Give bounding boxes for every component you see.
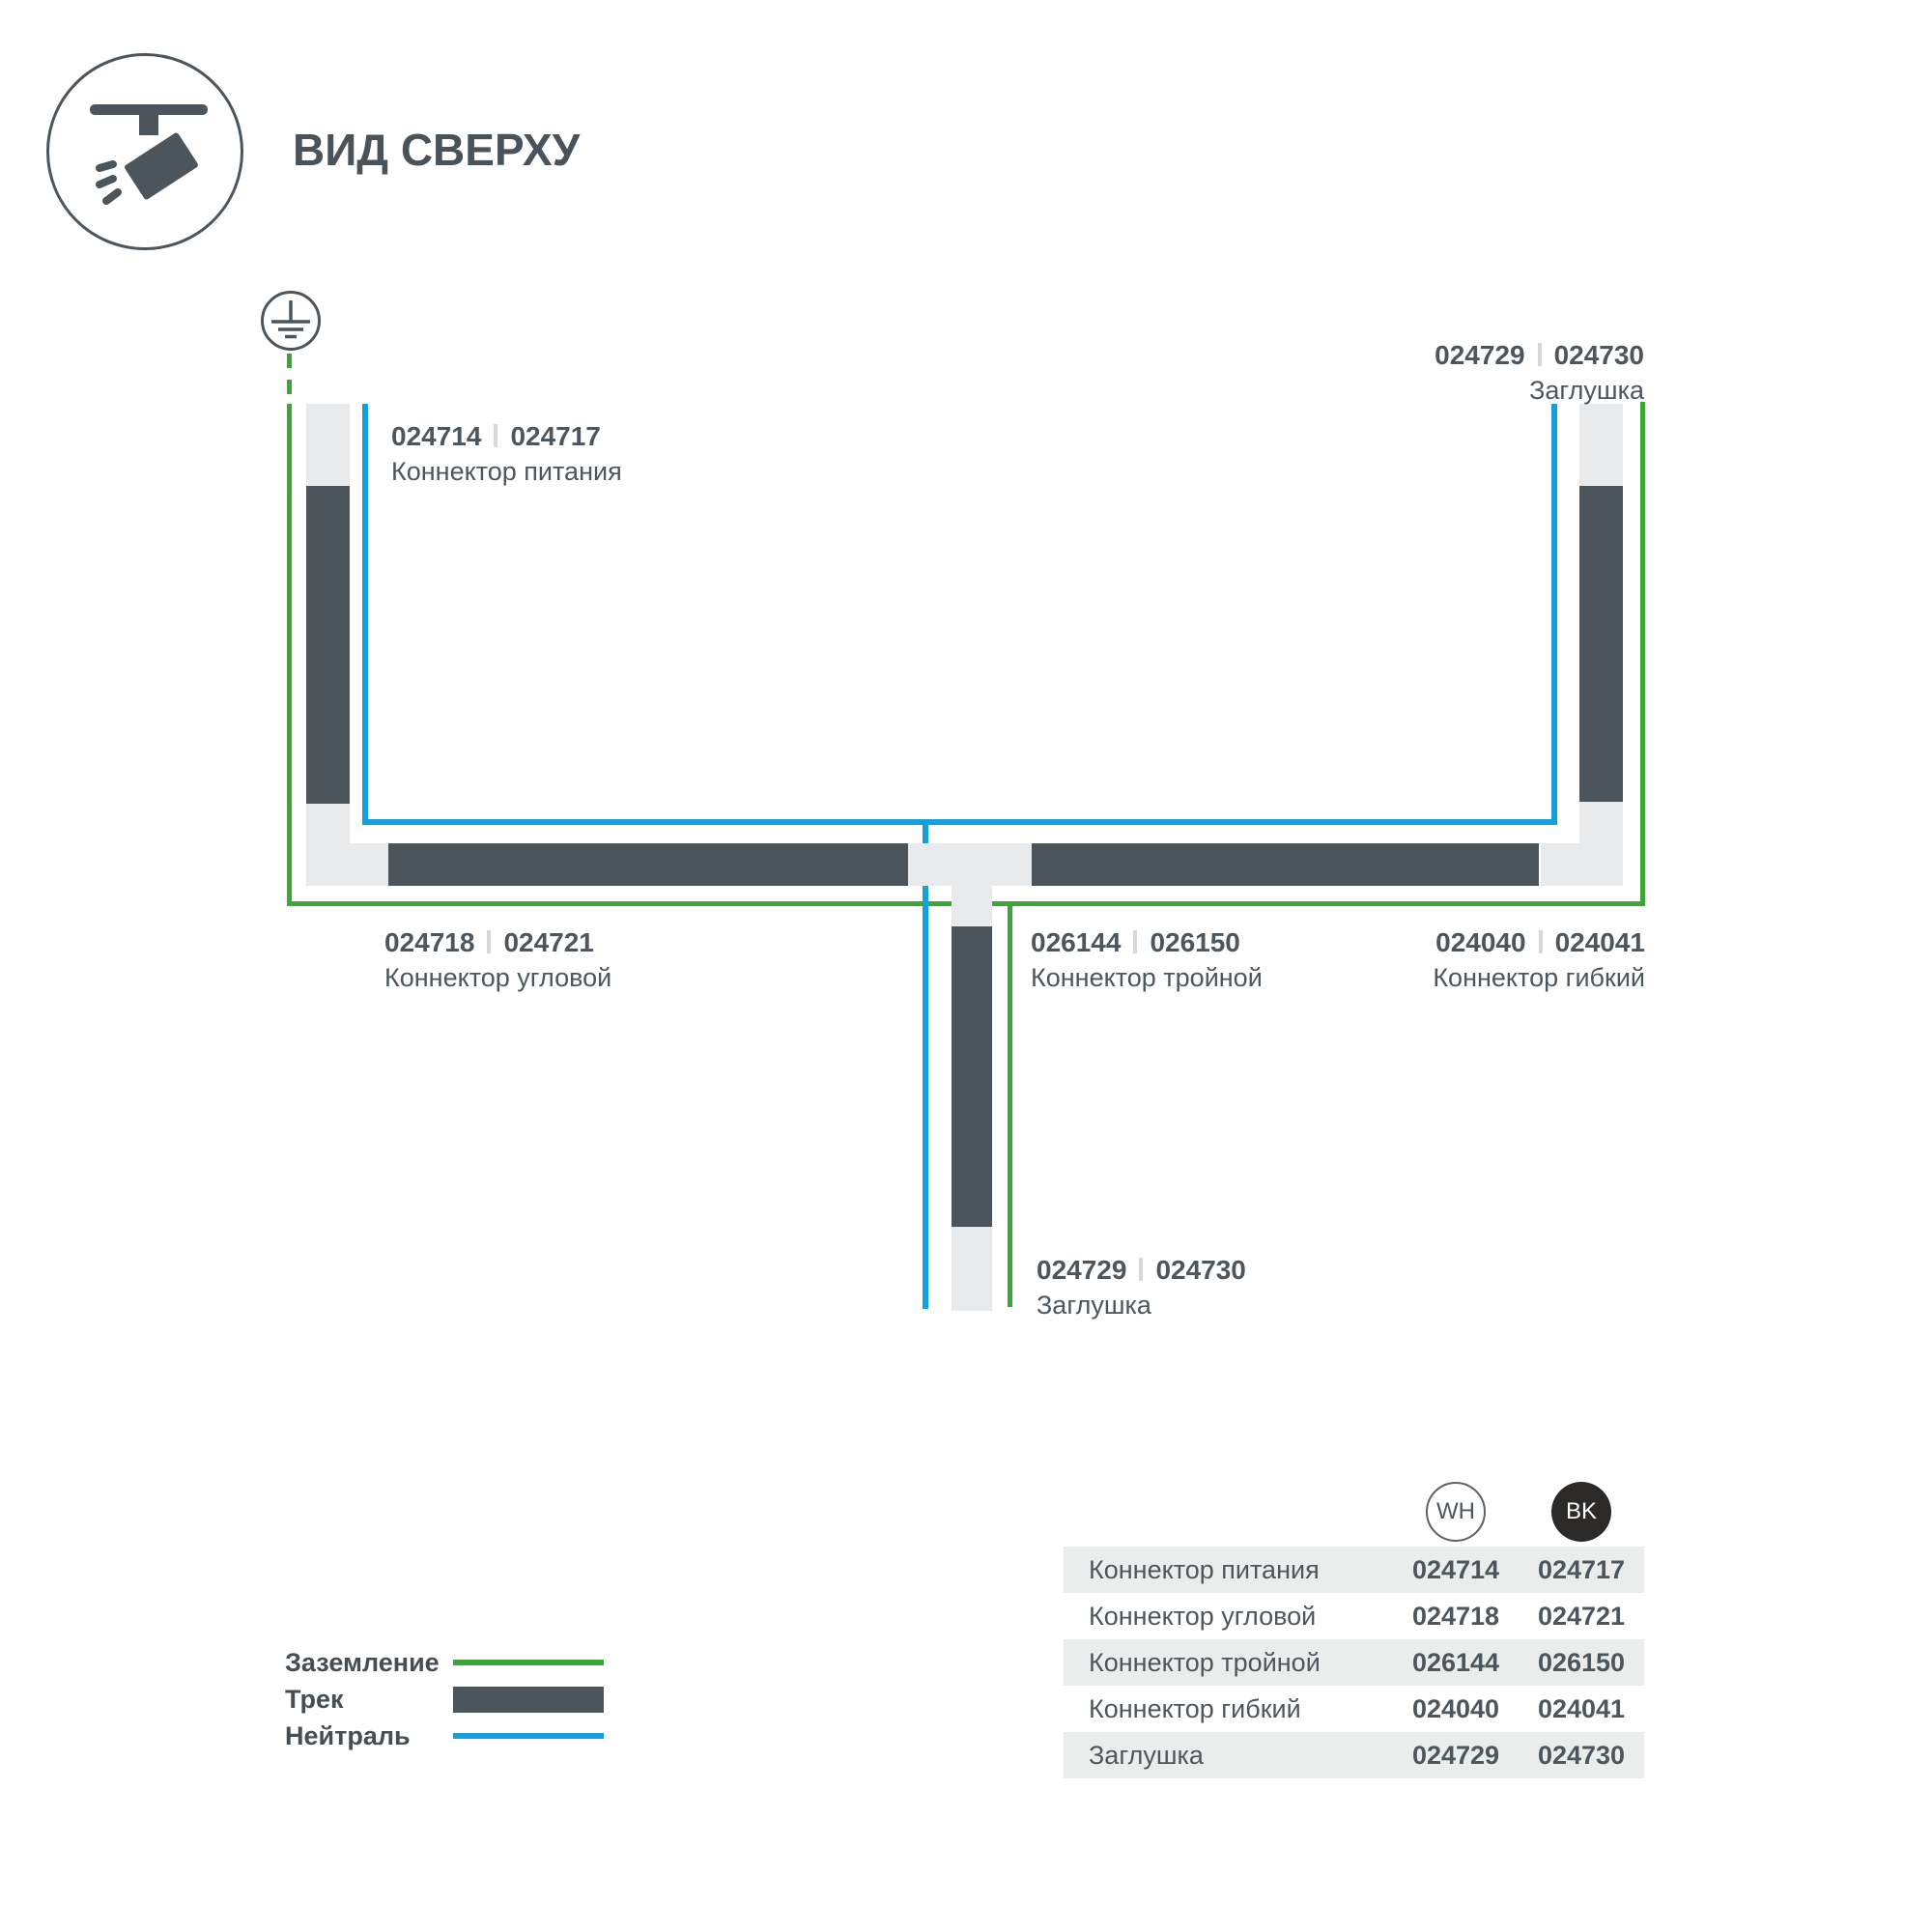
track-segment-right — [1579, 486, 1623, 802]
part-number-wh: 024714 — [391, 421, 481, 451]
t-connector-bar — [908, 843, 1032, 886]
divider — [1539, 930, 1543, 953]
part-numbers: 026144026150 — [1031, 925, 1263, 960]
neutral-line-middle-drop — [923, 824, 928, 1309]
row-wh-code: 024718 — [1393, 1602, 1519, 1632]
part-number-wh: 024040 — [1435, 927, 1525, 957]
column-header-white: WH — [1426, 1482, 1486, 1542]
ground-line-dashed — [287, 354, 292, 404]
part-numbers: 024729024730 — [1037, 1253, 1246, 1288]
corner-connector-left-v — [306, 804, 350, 886]
row-bk-code: 024041 — [1519, 1694, 1644, 1724]
row-label: Коннектор угловой — [1064, 1602, 1393, 1632]
corner-connector-right-v — [1579, 802, 1623, 886]
part-number-bk: 024041 — [1555, 927, 1645, 957]
ground-line-left — [287, 404, 292, 906]
legend-label: Нейтраль — [285, 1721, 453, 1751]
neutral-line-left — [362, 404, 368, 821]
part-number-bk: 024721 — [503, 927, 593, 957]
page-title: ВИД СВЕРХУ — [293, 124, 580, 176]
neutral-line-right — [1551, 404, 1557, 819]
neutral-line-swatch — [453, 1733, 604, 1739]
legend-label: Трек — [285, 1685, 453, 1715]
ground-line-swatch — [453, 1660, 604, 1665]
row-label: Коннектор тройной — [1064, 1648, 1393, 1678]
divider — [487, 930, 491, 953]
part-name: Заглушка — [1435, 373, 1644, 408]
legend: Заземление Трек Нейтраль — [285, 1644, 604, 1754]
part-number-bk: 024717 — [510, 421, 600, 451]
table-row: Коннектор тройной 026144 026150 — [1064, 1639, 1644, 1686]
callout-flexible-connector: 024040024041 Коннектор гибкий — [1433, 925, 1645, 995]
part-number-wh: 026144 — [1031, 927, 1121, 957]
legend-label: Заземление — [285, 1648, 453, 1678]
track-segment-left — [306, 486, 350, 804]
part-number-bk: 024730 — [1554, 340, 1644, 370]
row-label: Коннектор гибкий — [1064, 1694, 1393, 1724]
table-row: Заглушка 024729 024730 — [1064, 1732, 1644, 1778]
row-bk-code: 024721 — [1519, 1602, 1644, 1632]
t-connector-stub — [952, 886, 992, 926]
row-bk-code: 024717 — [1519, 1555, 1644, 1585]
part-name: Коннектор питания — [391, 454, 622, 489]
part-name: Коннектор гибкий — [1433, 960, 1645, 995]
divider — [1538, 343, 1542, 366]
row-bk-code: 026150 — [1519, 1648, 1644, 1678]
track-bar-swatch — [453, 1687, 604, 1713]
row-wh-code: 024040 — [1393, 1694, 1519, 1724]
legend-item-ground: Заземление — [285, 1644, 604, 1681]
neutral-line-bottom — [362, 819, 1557, 825]
table-row: Коннектор гибкий 024040 024041 — [1064, 1686, 1644, 1732]
row-wh-code: 024714 — [1393, 1555, 1519, 1585]
part-numbers: 024729024730 — [1435, 338, 1644, 373]
column-header-black: BK — [1551, 1482, 1611, 1542]
row-wh-code: 024729 — [1393, 1741, 1519, 1771]
divider — [1139, 1258, 1143, 1281]
part-name: Коннектор тройной — [1031, 960, 1263, 995]
corner-connector-right-h — [1541, 843, 1579, 886]
ground-symbol-icon — [261, 291, 321, 351]
callout-end-cap-top: 024729024730 Заглушка — [1435, 338, 1644, 408]
part-number-wh: 024718 — [384, 927, 474, 957]
table-row: Коннектор питания 024714 024717 — [1064, 1547, 1644, 1593]
track-segment-bottom-left — [388, 843, 908, 886]
page: ВИД СВЕРХУ 024714024717 Коннек — [0, 0, 1932, 1932]
ground-line-middle-drop — [1008, 906, 1012, 1307]
part-name: Коннектор угловой — [384, 960, 611, 995]
divider — [494, 424, 497, 447]
end-cap-bottom — [952, 1227, 992, 1311]
divider — [1133, 930, 1137, 953]
ground-line-right — [1640, 402, 1645, 901]
part-number-bk: 026150 — [1150, 927, 1239, 957]
part-number-bk: 024730 — [1155, 1255, 1245, 1285]
row-bk-code: 024730 — [1519, 1741, 1644, 1771]
track-segment-bottom-right — [1032, 843, 1539, 886]
callout-corner-connector: 024718024721 Коннектор угловой — [384, 925, 611, 995]
part-numbers: 024040024041 — [1433, 925, 1645, 960]
row-label: Заглушка — [1064, 1741, 1393, 1771]
part-numbers: 024718024721 — [384, 925, 611, 960]
legend-item-track: Трек — [285, 1681, 604, 1718]
row-label: Коннектор питания — [1064, 1555, 1393, 1585]
callout-triple-connector: 026144026150 Коннектор тройной — [1031, 925, 1263, 995]
part-numbers: 024714024717 — [391, 419, 622, 454]
track-segment-middle — [952, 926, 992, 1227]
parts-table: Коннектор питания 024714 024717 Коннекто… — [1064, 1547, 1644, 1778]
part-number-wh: 024729 — [1435, 340, 1524, 370]
corner-connector-left-h — [350, 843, 388, 886]
callout-power-connector: 024714024717 Коннектор питания — [391, 419, 622, 489]
part-number-wh: 024729 — [1037, 1255, 1126, 1285]
row-wh-code: 026144 — [1393, 1648, 1519, 1678]
callout-end-cap-bottom: 024729024730 Заглушка — [1037, 1253, 1246, 1322]
table-row: Коннектор угловой 024718 024721 — [1064, 1593, 1644, 1639]
track-light-icon — [46, 53, 243, 250]
legend-item-neutral: Нейтраль — [285, 1718, 604, 1754]
part-name: Заглушка — [1037, 1288, 1246, 1322]
